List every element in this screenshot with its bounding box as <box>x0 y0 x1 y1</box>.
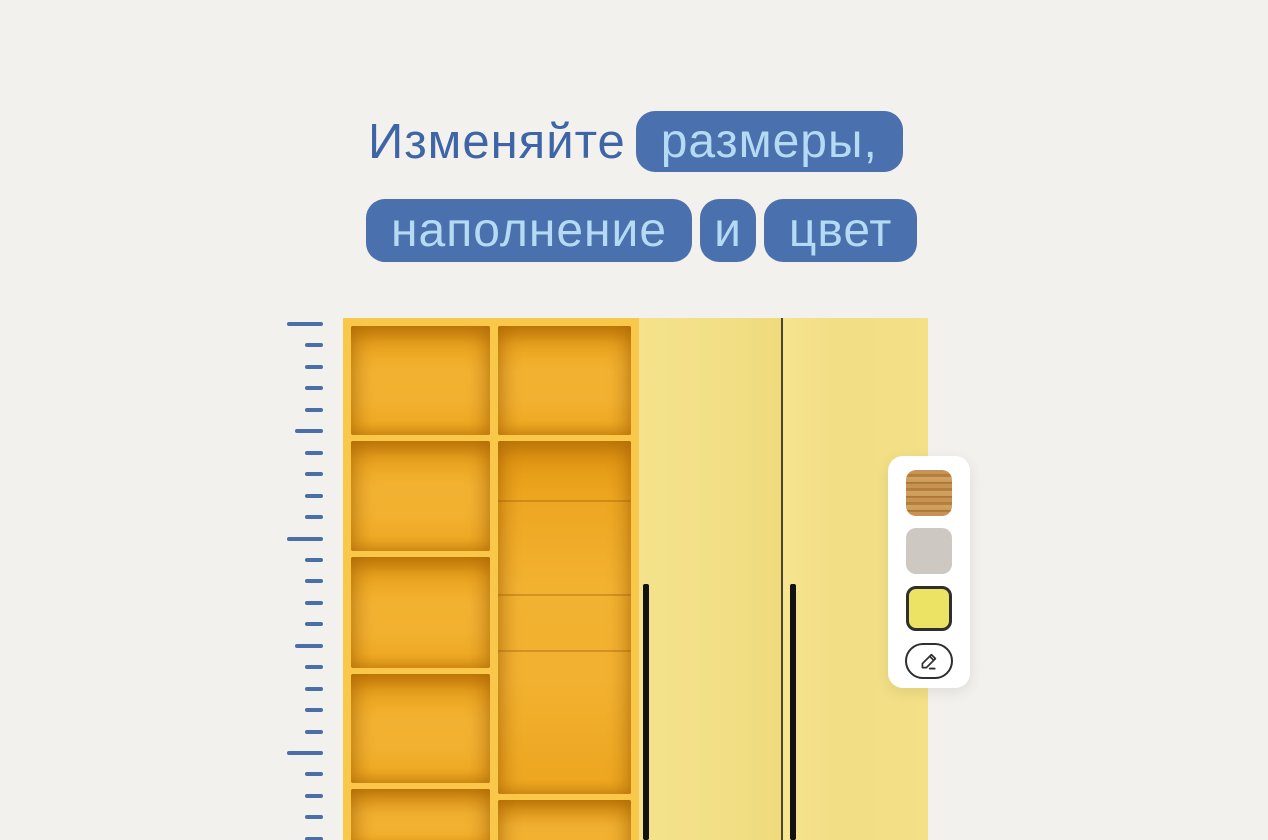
open-shelf-section[interactable] <box>343 318 639 840</box>
door-left[interactable] <box>639 318 781 840</box>
shelf-cell[interactable] <box>498 441 631 794</box>
ruler-tick <box>305 772 323 776</box>
wood-swatch[interactable] <box>906 470 952 516</box>
ruler-tick <box>305 815 323 819</box>
back-panel-seam <box>498 594 631 596</box>
headline-badge: наполнение <box>366 199 692 262</box>
edit-color-button[interactable] <box>905 643 953 679</box>
shelf-cell[interactable] <box>351 789 490 840</box>
ruler-tick <box>287 537 323 541</box>
back-panel-seam <box>498 650 631 652</box>
yellow-swatch[interactable] <box>906 586 952 631</box>
shelf-cell[interactable] <box>351 557 490 668</box>
ruler-tick <box>305 730 323 734</box>
headline-line-2: наполнениеицвет <box>366 199 917 262</box>
headline-text: Изменяйте <box>368 114 626 170</box>
back-panel-seam <box>498 500 631 502</box>
height-ruler <box>287 322 323 840</box>
ruler-tick <box>305 451 323 455</box>
gray-swatch[interactable] <box>906 528 952 574</box>
shelf-cell[interactable] <box>351 441 490 551</box>
color-panel <box>888 456 970 688</box>
pencil-icon <box>916 649 942 673</box>
ruler-tick <box>305 622 323 626</box>
ruler-tick <box>305 386 323 390</box>
ruler-tick <box>287 751 323 755</box>
ruler-tick <box>287 322 323 326</box>
headline-badge: и <box>700 199 756 262</box>
ruler-tick <box>305 472 323 476</box>
shelf-cell[interactable] <box>498 800 631 840</box>
door-handle-right <box>790 584 796 840</box>
ruler-tick <box>305 343 323 347</box>
shelf-cell[interactable] <box>351 674 490 783</box>
screen: Изменяйте размеры, наполнениеицвет <box>0 0 1268 840</box>
ruler-tick <box>305 558 323 562</box>
ruler-tick <box>305 708 323 712</box>
ruler-tick <box>305 665 323 669</box>
ruler-tick <box>305 579 323 583</box>
door-seam <box>781 318 783 840</box>
door-handle-left <box>643 584 649 840</box>
ruler-tick <box>305 365 323 369</box>
ruler-tick <box>305 687 323 691</box>
ruler-tick <box>305 601 323 605</box>
ruler-tick <box>305 515 323 519</box>
shelf-cell[interactable] <box>498 326 631 435</box>
headline-badge: цвет <box>764 199 918 262</box>
ruler-tick <box>305 794 323 798</box>
wardrobe <box>343 318 928 840</box>
ruler-tick <box>295 644 323 648</box>
shelf-cell[interactable] <box>351 326 490 435</box>
ruler-tick <box>305 408 323 412</box>
headline-line-1: Изменяйте размеры, <box>368 111 903 172</box>
ruler-tick <box>295 429 323 433</box>
ruler-tick <box>305 494 323 498</box>
headline-badge: размеры, <box>636 111 903 172</box>
